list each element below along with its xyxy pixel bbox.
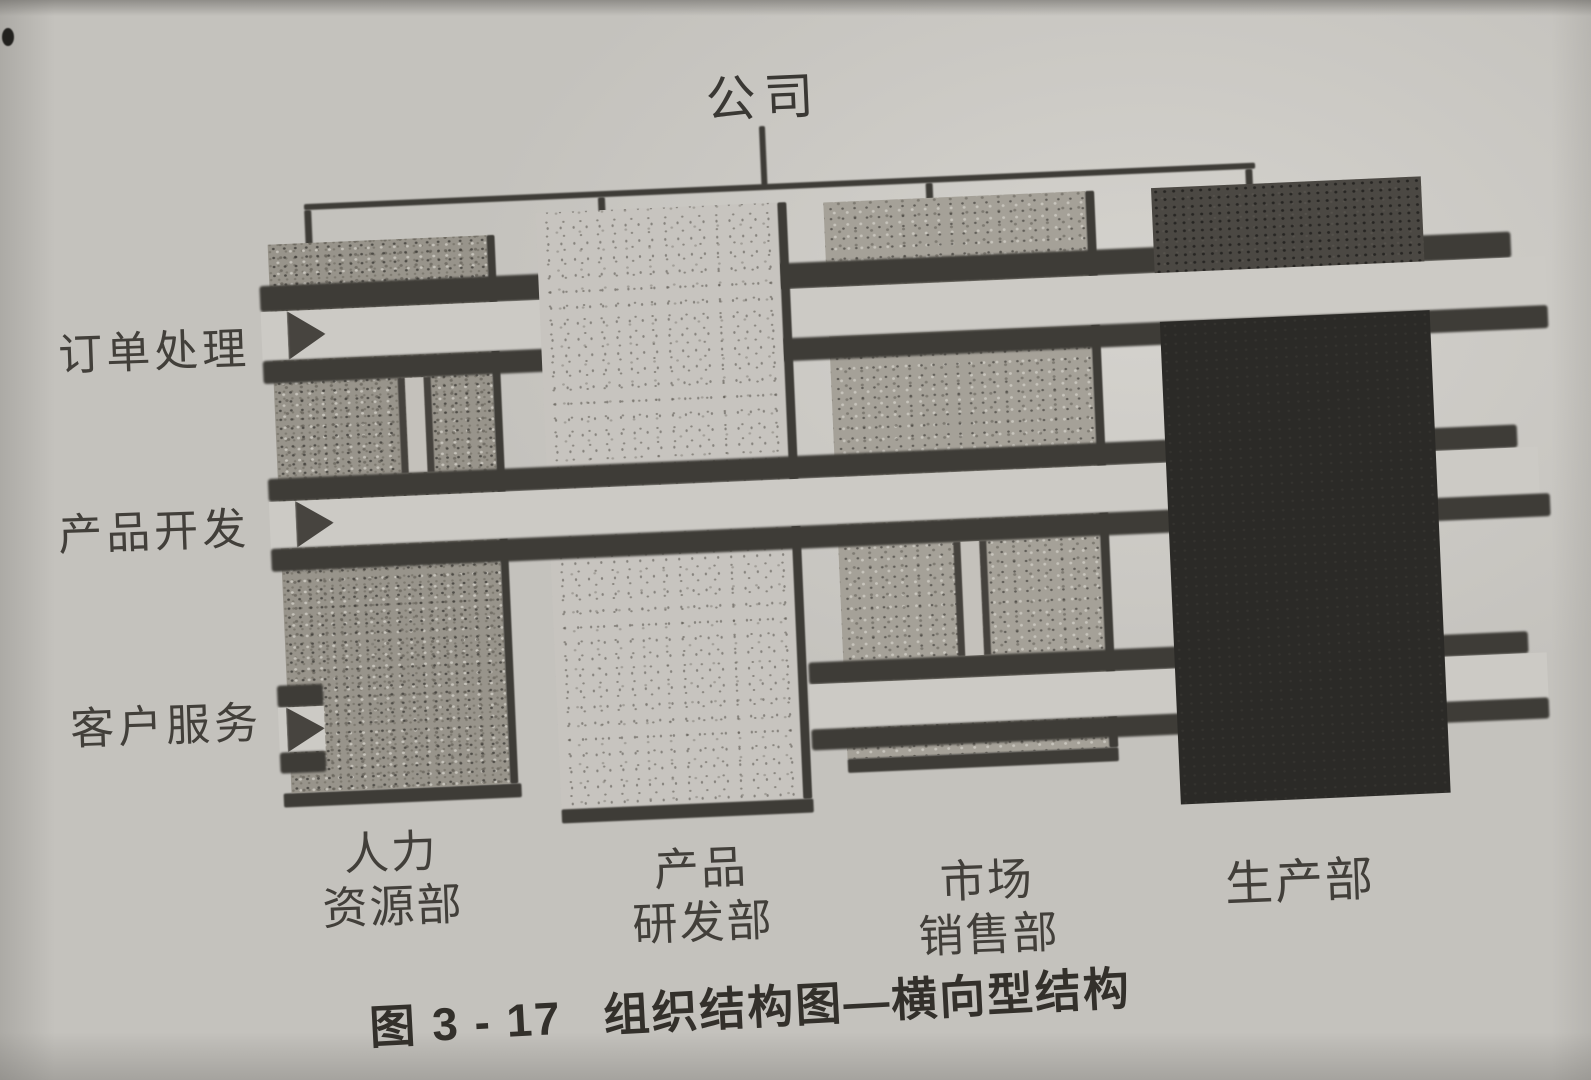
scanned-book-page: 公司 <box>0 0 1591 1080</box>
department-label-line: 人力 <box>290 822 492 884</box>
page-edge-artifact-dot <box>2 28 14 46</box>
marketing-column-subdivision-channel <box>953 541 991 656</box>
band3-tail-top-border <box>277 684 324 708</box>
band3-tail-notch <box>286 706 326 753</box>
department-label-hr: 人力 资源部 <box>290 822 494 938</box>
figure-caption-number: 图 3 - 17 <box>368 982 564 1058</box>
figure-caption: 图 3 - 17 组织结构图—横向型结构 <box>279 947 1221 1062</box>
band1-tail-notch <box>287 309 327 360</box>
department-label-production: 生产部 <box>1184 852 1416 915</box>
department-label-line: 研发部 <box>602 892 804 954</box>
band2-tail-notch <box>295 499 335 548</box>
department-label-rd: 产品 研发部 <box>600 838 804 954</box>
process-band-customer-service-tail <box>277 684 327 774</box>
department-label-line: 产品 <box>600 838 802 900</box>
band3-tail-bottom-border <box>280 751 327 774</box>
company-root-label: 公司 <box>672 54 855 134</box>
department-label-line: 生产部 <box>1184 852 1416 915</box>
root-stem-line <box>759 126 768 186</box>
department-label-line: 资源部 <box>292 876 494 938</box>
process-label-customer-service: 客户服务 <box>69 687 263 758</box>
department-label-marketing: 市场 销售部 <box>886 850 1090 966</box>
hr-column-subdivision-channel <box>398 377 435 473</box>
drop-line-hr <box>304 210 313 246</box>
department-label-line: 市场 <box>886 850 1088 912</box>
process-label-order-processing: 订单处理 <box>57 313 251 384</box>
figure-caption-title: 组织结构图—横向型结构 <box>602 952 1133 1046</box>
band3-tail-white <box>278 706 326 753</box>
org-structure-diagram: 公司 <box>231 0 1585 856</box>
column-production-top-section <box>1151 176 1424 273</box>
process-label-product-development: 产品开发 <box>57 493 251 564</box>
column-production-body <box>1160 310 1451 804</box>
